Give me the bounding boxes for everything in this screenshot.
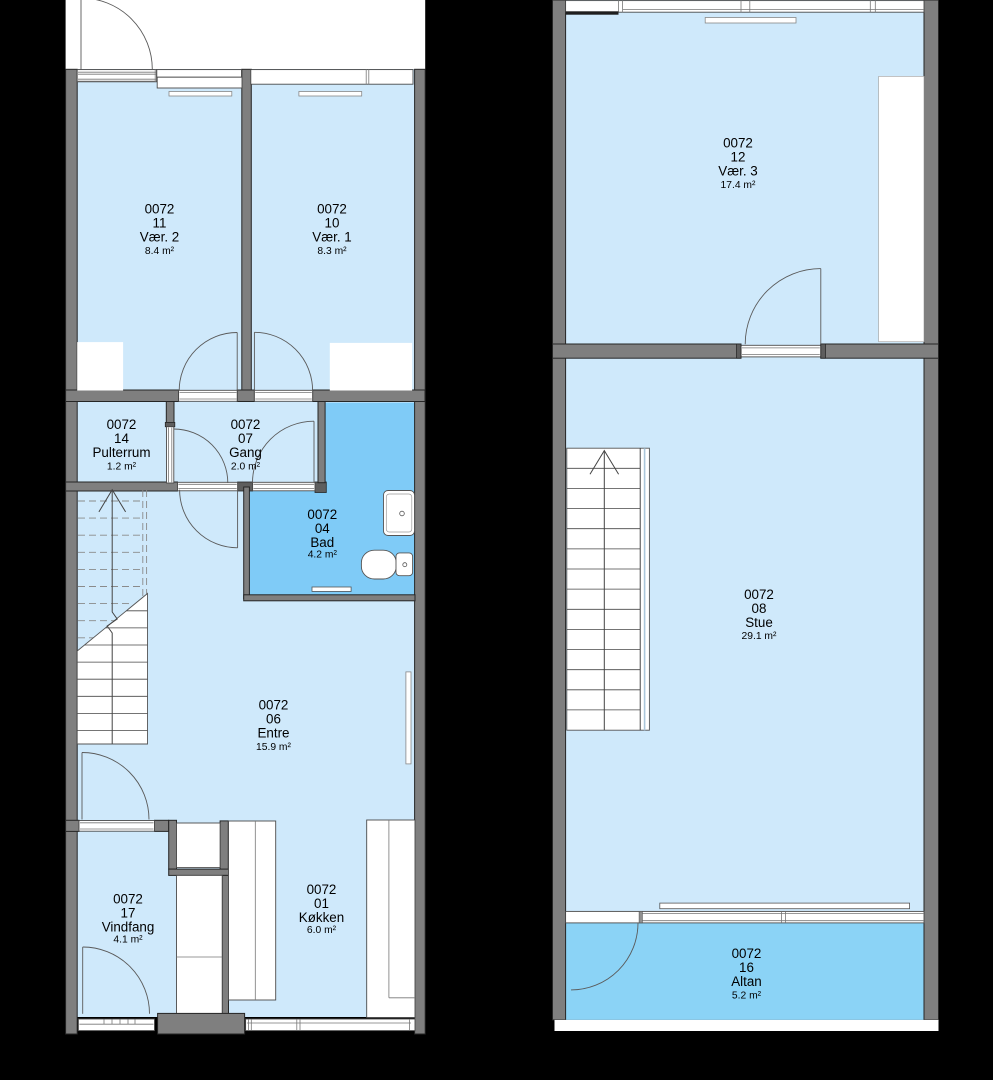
svg-text:0072: 0072 <box>317 202 347 217</box>
svg-text:5.2 m²: 5.2 m² <box>732 991 762 1002</box>
svg-text:15.9 m²: 15.9 m² <box>256 742 291 753</box>
svg-text:2.0 m²: 2.0 m² <box>231 462 261 473</box>
svg-text:06: 06 <box>266 712 281 727</box>
svg-text:14: 14 <box>114 431 129 446</box>
svg-text:0072: 0072 <box>107 417 137 432</box>
svg-text:Pulterrum: Pulterrum <box>92 445 150 460</box>
svg-text:0072: 0072 <box>732 946 762 961</box>
svg-text:07: 07 <box>238 431 253 446</box>
svg-text:Vær. 3: Vær. 3 <box>718 164 757 179</box>
svg-text:0072: 0072 <box>259 698 289 713</box>
svg-text:0072: 0072 <box>307 507 337 522</box>
svg-text:Bad: Bad <box>310 535 334 550</box>
svg-text:Entre: Entre <box>257 726 289 741</box>
svg-text:Køkken: Køkken <box>299 910 344 925</box>
svg-text:16: 16 <box>739 960 754 975</box>
svg-text:6.0 m²: 6.0 m² <box>307 925 337 936</box>
svg-text:0072: 0072 <box>307 882 337 897</box>
svg-text:04: 04 <box>315 521 330 536</box>
svg-text:10: 10 <box>325 216 340 231</box>
svg-text:0072: 0072 <box>723 136 753 151</box>
svg-text:1.2 m²: 1.2 m² <box>107 462 137 473</box>
svg-text:Stue: Stue <box>745 615 773 630</box>
svg-text:17: 17 <box>121 906 136 921</box>
svg-text:29.1 m²: 29.1 m² <box>742 631 777 642</box>
svg-text:11: 11 <box>153 216 167 231</box>
svg-text:8.4 m²: 8.4 m² <box>145 246 175 257</box>
svg-text:17.4 m²: 17.4 m² <box>721 180 756 191</box>
svg-text:Altan: Altan <box>731 974 762 989</box>
svg-text:8.3 m²: 8.3 m² <box>317 246 347 257</box>
svg-text:0072: 0072 <box>145 202 175 217</box>
svg-text:08: 08 <box>752 601 767 616</box>
svg-text:4.2 m²: 4.2 m² <box>308 550 338 561</box>
svg-text:Vindfang: Vindfang <box>102 920 155 935</box>
svg-text:0072: 0072 <box>231 417 261 432</box>
svg-text:12: 12 <box>731 150 746 165</box>
svg-text:0072: 0072 <box>113 892 143 907</box>
svg-text:Gang: Gang <box>229 445 262 460</box>
svg-text:01: 01 <box>314 896 329 911</box>
svg-text:0072: 0072 <box>744 587 774 602</box>
svg-text:4.1 m²: 4.1 m² <box>113 935 143 946</box>
svg-text:Vær. 1: Vær. 1 <box>312 230 351 245</box>
svg-text:Vær. 2: Vær. 2 <box>140 230 179 245</box>
